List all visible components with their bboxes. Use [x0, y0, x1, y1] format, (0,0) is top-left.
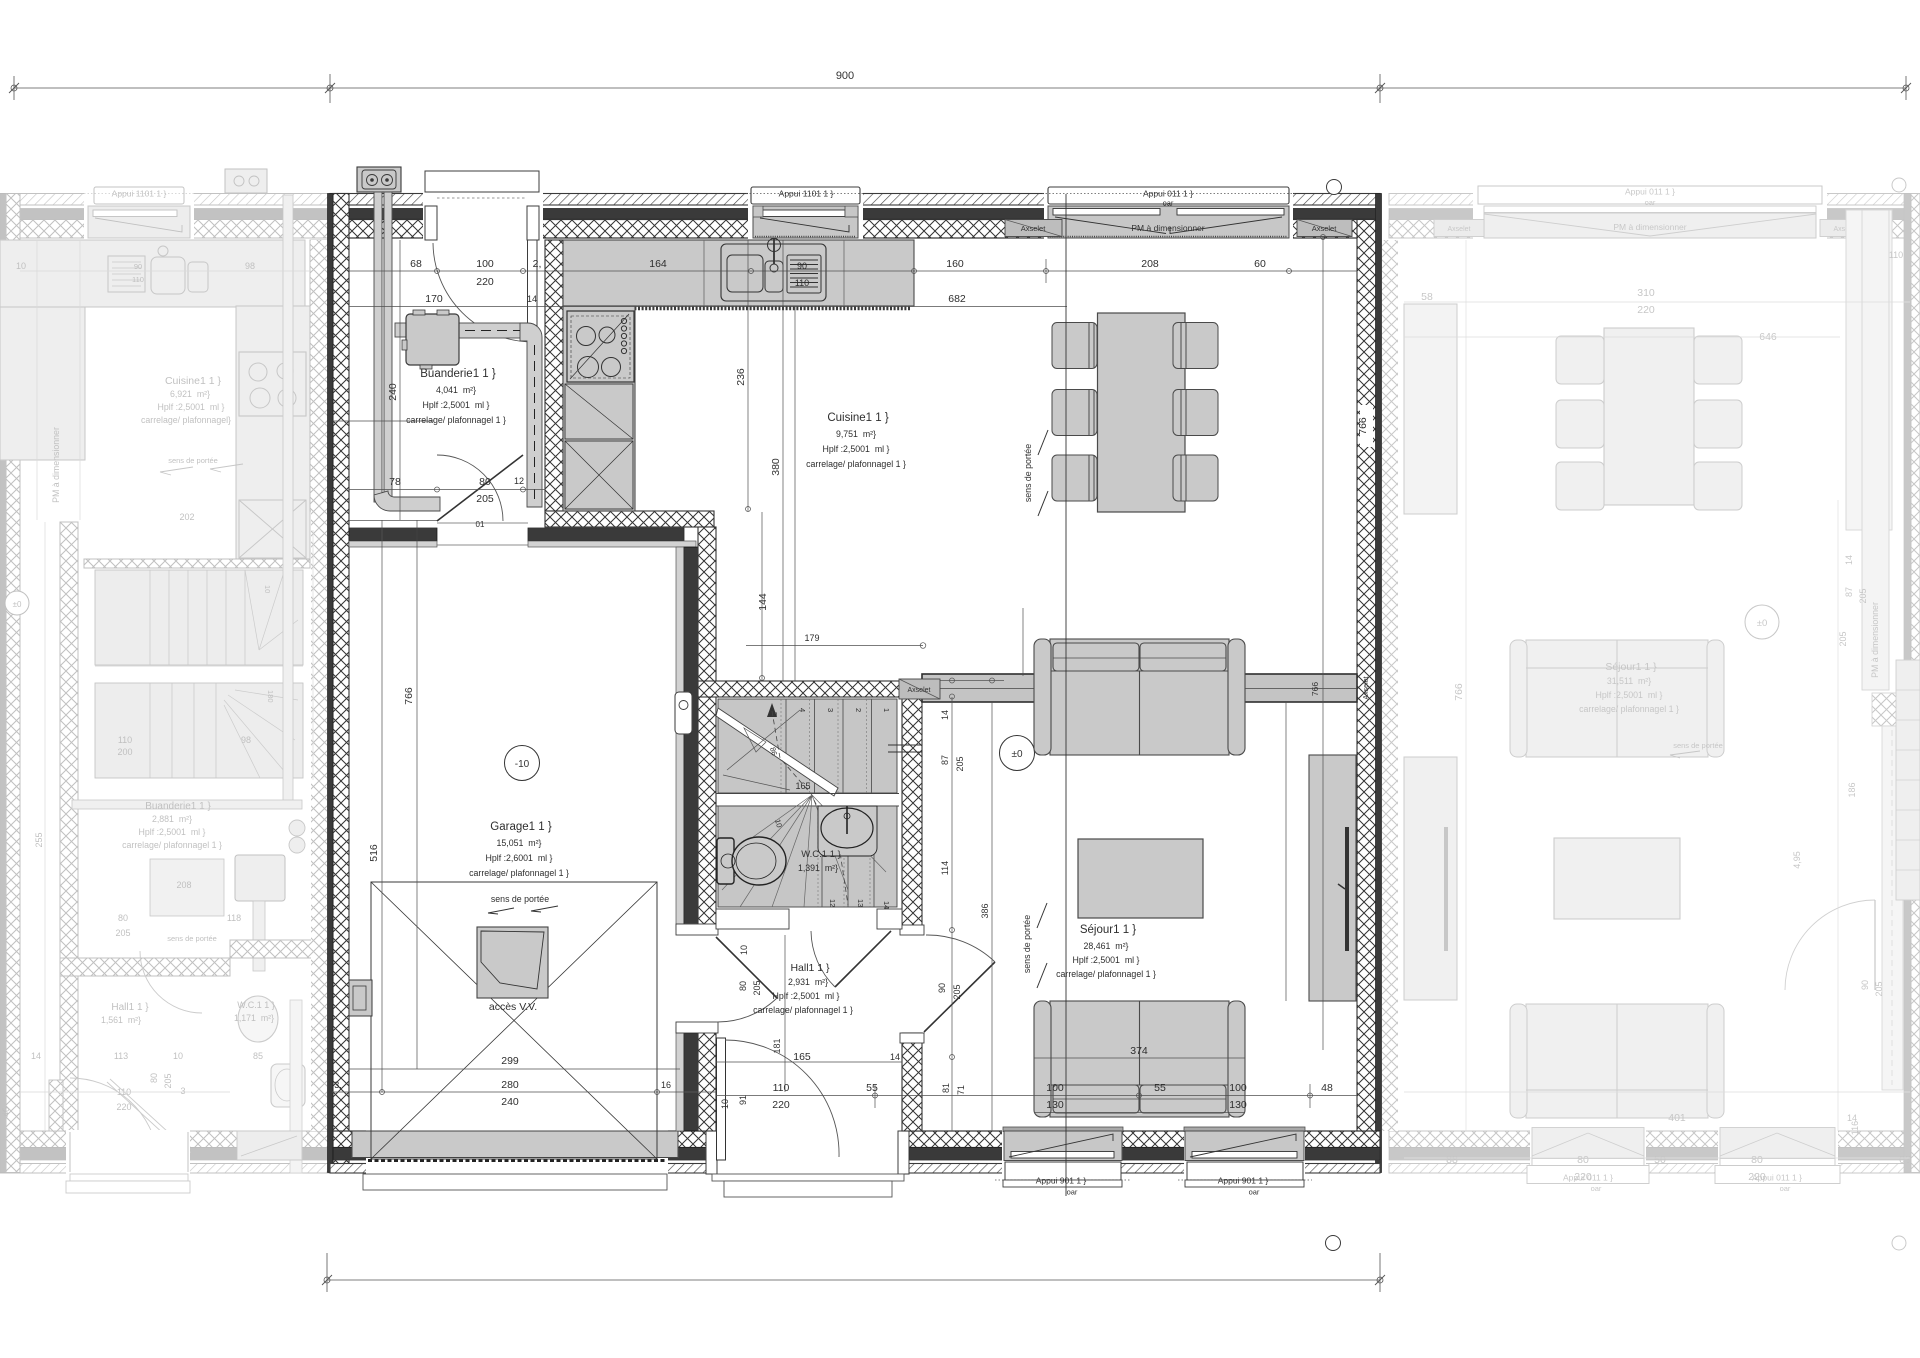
- svg-text:Appui 901 1 }: Appui 901 1 }: [1218, 1176, 1269, 1186]
- svg-text:766: 766: [1357, 417, 1369, 435]
- svg-text:80: 80: [479, 476, 491, 488]
- svg-text:766: 766: [1310, 682, 1320, 696]
- svg-text:144: 144: [757, 593, 769, 611]
- svg-text:28,461 m²}: 28,461 m²}: [1084, 941, 1129, 951]
- svg-text:Cuisine1 1 }: Cuisine1 1 }: [165, 375, 222, 387]
- svg-text:Hplf :2,5001 ml }: Hplf :2,5001 ml }: [423, 400, 490, 410]
- svg-text:682: 682: [948, 293, 966, 305]
- svg-text:90: 90: [134, 262, 142, 271]
- svg-text:10: 10: [739, 945, 749, 955]
- svg-text:PM à dimensionner: PM à dimensionner: [1131, 223, 1204, 233]
- svg-text:4,041 m²}: 4,041 m²}: [436, 385, 476, 395]
- svg-text:165: 165: [795, 781, 810, 791]
- svg-text:12: 12: [828, 899, 837, 907]
- svg-text:100: 100: [476, 258, 494, 270]
- svg-text:Hplf :2,5001 ml }: Hplf :2,5001 ml }: [139, 827, 206, 837]
- svg-text:90: 90: [1860, 980, 1870, 990]
- svg-text:181: 181: [772, 1038, 782, 1053]
- svg-text:55: 55: [866, 1082, 878, 1094]
- svg-text:78: 78: [389, 476, 401, 488]
- svg-text:3: 3: [180, 1086, 185, 1096]
- svg-text:Cuisine1 1 }: Cuisine1 1 }: [827, 412, 889, 424]
- svg-text:58: 58: [1421, 291, 1433, 303]
- svg-text:oar: oar: [1645, 198, 1656, 207]
- svg-text:16: 16: [661, 1080, 671, 1090]
- svg-text:80: 80: [1577, 1154, 1589, 1166]
- svg-text:Séjour1 1 }: Séjour1 1 }: [1605, 661, 1657, 673]
- svg-text:Axselet: Axselet: [1312, 224, 1338, 233]
- svg-text:50: 50: [1654, 1154, 1666, 1166]
- svg-text:160: 160: [946, 258, 964, 270]
- svg-text:110: 110: [118, 735, 132, 745]
- svg-text:10: 10: [263, 585, 272, 593]
- svg-text:-10: -10: [515, 759, 530, 770]
- svg-text:oar: oar: [1067, 1188, 1078, 1197]
- svg-text:205: 205: [952, 984, 962, 999]
- svg-text:80: 80: [149, 1073, 159, 1083]
- svg-text:299: 299: [501, 1055, 519, 1067]
- svg-text:40: 40: [1, 1107, 11, 1117]
- svg-text:130: 130: [1229, 1099, 1247, 1111]
- svg-text:401: 401: [1668, 1112, 1686, 1124]
- svg-text:91: 91: [738, 1095, 748, 1105]
- svg-text:Hall1 1 }: Hall1 1 }: [790, 962, 830, 974]
- svg-text:87: 87: [940, 755, 950, 765]
- svg-text:186: 186: [1847, 782, 1857, 797]
- svg-text:766: 766: [1453, 683, 1465, 701]
- svg-text:205: 205: [476, 493, 494, 505]
- svg-text:oar: oar: [1780, 1184, 1791, 1193]
- svg-text:110: 110: [132, 275, 144, 284]
- svg-text:205: 205: [1874, 981, 1884, 996]
- svg-text:Appui 1101 1 }: Appui 1101 1 }: [112, 189, 167, 199]
- svg-text:12: 12: [514, 476, 524, 486]
- svg-text:14: 14: [1847, 1113, 1857, 1123]
- svg-text:90: 90: [797, 261, 807, 271]
- svg-text:Appui 011 1 }: Appui 011 1 }: [1625, 187, 1675, 197]
- svg-text:85: 85: [253, 1051, 263, 1061]
- svg-text:Hplf :2,5001 ml }: Hplf :2,5001 ml }: [773, 991, 840, 1001]
- svg-text:165: 165: [793, 1051, 811, 1063]
- svg-text:81: 81: [941, 1083, 951, 1093]
- svg-text:1,391 m²}: 1,391 m²}: [798, 863, 838, 873]
- svg-text:Buanderie1 1 }: Buanderie1 1 }: [420, 368, 496, 380]
- svg-text:164: 164: [649, 258, 667, 270]
- svg-text:202: 202: [179, 512, 194, 522]
- svg-text:Appui 1101 1 }: Appui 1101 1 }: [779, 189, 834, 199]
- svg-text:Hplf :2,5001 ml }: Hplf :2,5001 ml }: [158, 402, 225, 412]
- svg-text:280: 280: [501, 1079, 519, 1091]
- svg-text:255: 255: [34, 832, 44, 847]
- svg-text:1,561 m²}: 1,561 m²}: [101, 1015, 141, 1025]
- svg-text:carrelage/ plafonnagel 1 }: carrelage/ plafonnagel 1 }: [406, 415, 506, 425]
- svg-text:55: 55: [1154, 1082, 1166, 1094]
- svg-text:374: 374: [1130, 1045, 1148, 1057]
- svg-text:80: 80: [738, 981, 748, 991]
- svg-text:71: 71: [956, 1085, 966, 1095]
- svg-text:2,931 m²}: 2,931 m²}: [788, 977, 828, 987]
- svg-text:sens de portée: sens de portée: [1022, 915, 1032, 973]
- svg-text:oar: oar: [1591, 1184, 1602, 1193]
- svg-text:98: 98: [245, 261, 255, 271]
- svg-text:110: 110: [795, 278, 809, 288]
- svg-text:2,: 2,: [533, 258, 542, 270]
- svg-text:205: 205: [1858, 588, 1868, 603]
- svg-text:15,051 m²}: 15,051 m²}: [497, 838, 542, 848]
- svg-text:2,881 m²}: 2,881 m²}: [152, 814, 192, 824]
- svg-text:113: 113: [114, 1051, 128, 1061]
- svg-text:130: 130: [1046, 1099, 1064, 1111]
- svg-text:01: 01: [476, 520, 485, 529]
- svg-text:carrelage/ plafonnagel 1 }: carrelage/ plafonnagel 1 }: [1579, 704, 1679, 714]
- svg-text:14: 14: [940, 710, 950, 720]
- svg-text:220: 220: [1748, 1171, 1766, 1183]
- svg-text:100: 100: [1229, 1082, 1247, 1094]
- svg-text:carrelage/ plafonnagel 1 }: carrelage/ plafonnagel 1 }: [806, 459, 906, 469]
- svg-text:98: 98: [241, 735, 251, 745]
- svg-text:200: 200: [117, 747, 132, 757]
- svg-text:W.C.1 1 }: W.C.1 1 }: [237, 1000, 275, 1010]
- svg-text:80: 80: [1751, 1154, 1763, 1166]
- svg-text:Hall1 1 }: Hall1 1 }: [111, 1002, 149, 1013]
- svg-text:Axselet: Axselet: [1448, 226, 1471, 233]
- svg-text:3: 3: [826, 708, 835, 712]
- svg-text:220: 220: [476, 276, 494, 288]
- svg-text:carrelage/ plafonnagel 1 }: carrelage/ plafonnagel 1 }: [753, 1005, 853, 1015]
- svg-text:88: 88: [1446, 1154, 1458, 1166]
- svg-text:180: 180: [266, 690, 275, 703]
- svg-text:90: 90: [937, 983, 947, 993]
- svg-text:Appui 011 1 }: Appui 011 1 }: [1143, 189, 1193, 199]
- svg-text:Appui 901 1 }: Appui 901 1 }: [1036, 1176, 1087, 1186]
- svg-text:110: 110: [1889, 250, 1903, 260]
- svg-text:1: 1: [882, 708, 891, 712]
- svg-text:Hplf :2,5001 ml }: Hplf :2,5001 ml }: [1073, 955, 1140, 965]
- svg-text:oar: oar: [1163, 199, 1174, 208]
- svg-text:118: 118: [227, 913, 241, 923]
- svg-text:±0: ±0: [13, 600, 22, 609]
- svg-text:9,751 m²}: 9,751 m²}: [836, 429, 876, 439]
- svg-text:170: 170: [425, 293, 443, 305]
- svg-text:14: 14: [882, 901, 891, 909]
- svg-text:14: 14: [890, 1052, 900, 1062]
- svg-text:3,: 3,: [334, 1080, 342, 1090]
- svg-text:sens de portée: sens de portée: [167, 934, 217, 943]
- svg-text:Séjour1 1 }: Séjour1 1 }: [1080, 924, 1136, 936]
- svg-text:03: 03: [1899, 1154, 1911, 1166]
- svg-text:carrelage/ plafonnagel 1 }: carrelage/ plafonnagel 1 }: [1056, 969, 1156, 979]
- svg-text:240: 240: [387, 383, 399, 401]
- svg-text:sens de portée: sens de portée: [1673, 741, 1723, 750]
- svg-text:Axselet: Axselet: [908, 687, 931, 694]
- svg-text:accès V.V.: accès V.V.: [489, 1001, 537, 1013]
- svg-text:Hplf :2,5001 ml }: Hplf :2,5001 ml }: [1596, 690, 1663, 700]
- svg-text:W.C.1 1 }: W.C.1 1 }: [801, 849, 841, 860]
- svg-text:68: 68: [410, 258, 422, 270]
- svg-text:240: 240: [501, 1096, 519, 1108]
- svg-text:208: 208: [1141, 258, 1159, 270]
- svg-text:PM à dimensionner: PM à dimensionner: [51, 427, 61, 503]
- svg-text:220: 220: [1637, 304, 1655, 316]
- svg-text:±0: ±0: [1011, 749, 1022, 760]
- svg-text:60: 60: [1254, 258, 1266, 270]
- svg-text:sens de portée: sens de portée: [491, 894, 549, 904]
- svg-text:114: 114: [940, 861, 950, 875]
- svg-text:31,511 m²}: 31,511 m²}: [1607, 676, 1651, 686]
- svg-text:179: 179: [804, 633, 819, 643]
- svg-text:220: 220: [116, 1102, 131, 1112]
- svg-text:14: 14: [31, 1051, 41, 1061]
- svg-text:516: 516: [368, 844, 380, 862]
- svg-text:10: 10: [173, 1051, 183, 1061]
- svg-text:310: 310: [1637, 287, 1655, 299]
- svg-text:100: 100: [1046, 1082, 1064, 1094]
- svg-text:Axselet: Axselet: [1363, 676, 1370, 699]
- svg-text:205: 205: [163, 1073, 173, 1088]
- svg-text:87: 87: [1844, 587, 1854, 597]
- svg-text:220: 220: [772, 1099, 790, 1111]
- svg-text:220: 220: [1574, 1171, 1592, 1183]
- svg-text:80: 80: [118, 913, 128, 923]
- svg-text:236: 236: [735, 368, 747, 386]
- svg-text:carrelage/ plafonnagel 1 }: carrelage/ plafonnagel 1 }: [122, 840, 222, 850]
- svg-text:6,921 m²}: 6,921 m²}: [170, 389, 210, 399]
- svg-text:205: 205: [1838, 631, 1848, 646]
- svg-text:Hplf :2,6001 ml }: Hplf :2,6001 ml }: [486, 853, 553, 863]
- svg-text:Buanderie1 1 }: Buanderie1 1 }: [145, 801, 211, 812]
- svg-text:carrelage/ plafonnagel}: carrelage/ plafonnagel}: [141, 415, 231, 425]
- svg-text:386: 386: [980, 903, 990, 918]
- svg-text:205: 205: [955, 756, 965, 771]
- svg-text:Hplf :2,5001 ml }: Hplf :2,5001 ml }: [823, 444, 890, 454]
- svg-text:oar: oar: [1249, 1188, 1260, 1197]
- svg-text:2: 2: [854, 708, 863, 712]
- svg-text:13: 13: [856, 899, 865, 907]
- svg-text:900: 900: [836, 70, 854, 82]
- svg-text:14: 14: [1844, 555, 1854, 565]
- svg-text:PM à dimensionner: PM à dimensionner: [1870, 602, 1880, 678]
- svg-text:208: 208: [176, 880, 191, 890]
- svg-text:carrelage/ plafonnagel 1 }: carrelage/ plafonnagel 1 }: [469, 868, 569, 878]
- svg-text:PM à dimensionner: PM à dimensionner: [1613, 222, 1686, 232]
- svg-text:±0: ±0: [1757, 618, 1768, 629]
- svg-text:48: 48: [1321, 1082, 1333, 1094]
- svg-text:380: 380: [770, 458, 782, 476]
- svg-text:4,95: 4,95: [1792, 851, 1802, 869]
- svg-text:14: 14: [527, 294, 537, 304]
- svg-text:Garage1 1 }: Garage1 1 }: [490, 821, 552, 833]
- svg-text:10: 10: [16, 261, 26, 271]
- svg-text:766: 766: [403, 687, 415, 705]
- svg-text:sens de portée: sens de portée: [1023, 444, 1033, 502]
- svg-text:1,171 m²}: 1,171 m²}: [234, 1013, 274, 1023]
- svg-text:10: 10: [720, 1099, 730, 1109]
- svg-text:205: 205: [752, 980, 762, 995]
- svg-text:110: 110: [773, 1082, 790, 1094]
- svg-text:Axselet: Axselet: [1021, 224, 1047, 233]
- svg-text:sens de portée: sens de portée: [168, 456, 218, 465]
- svg-text:205: 205: [115, 928, 130, 938]
